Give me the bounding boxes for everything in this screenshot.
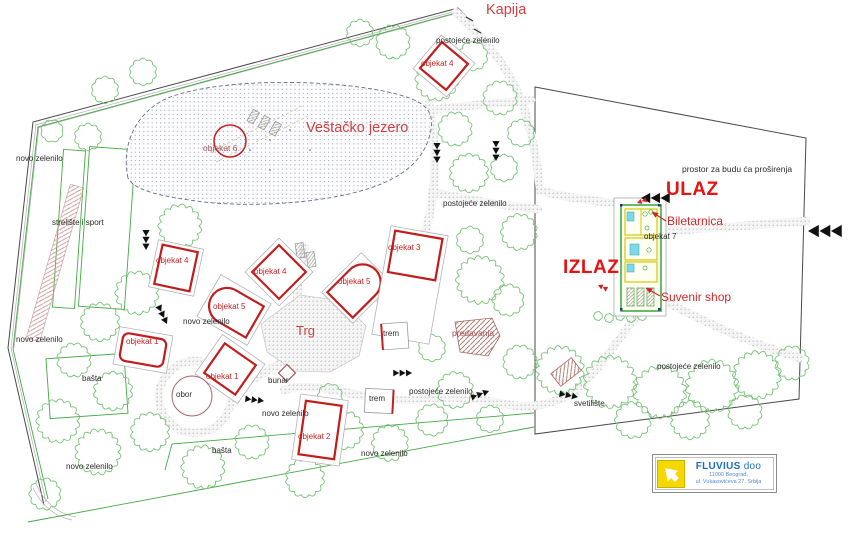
tree-icon xyxy=(450,153,489,193)
company-address-line2: ul. Vukasovićeva 27, Srbija xyxy=(685,479,772,486)
fluvius-logo-icon xyxy=(657,460,685,488)
svetiliste-structure xyxy=(551,358,581,387)
building-objekat-4-north xyxy=(413,35,475,97)
direction-arrows-icon xyxy=(142,230,149,250)
tree-icon xyxy=(492,284,524,316)
tree-icon xyxy=(503,345,537,379)
obor-pen xyxy=(172,376,212,416)
direction-arrows-icon xyxy=(245,395,264,404)
tree-icon xyxy=(457,226,484,254)
tree-icon xyxy=(728,395,762,429)
trem-north-structure xyxy=(381,322,409,350)
building-objekat-1-west xyxy=(113,327,173,374)
direction-arrows-icon xyxy=(492,141,499,161)
direction-arrows-icon xyxy=(597,283,608,292)
artificial-lake xyxy=(126,82,431,204)
direction-arrows-icon xyxy=(808,225,842,237)
tree-icon xyxy=(235,425,269,459)
tree-icon xyxy=(75,429,121,475)
site-plan-page: Kapijapostojeće zeleniloobjekat 4Veštačk… xyxy=(0,0,850,543)
building-objekat-4-west xyxy=(149,240,204,297)
tree-icon xyxy=(92,76,119,104)
tree-icon xyxy=(438,112,472,146)
tree-icon xyxy=(57,343,91,377)
tree-icon xyxy=(634,365,687,419)
tree-icon xyxy=(733,351,782,400)
tree-icon xyxy=(36,399,80,443)
direction-arrows-icon xyxy=(155,304,170,325)
tree-icon xyxy=(436,372,473,409)
green-areas xyxy=(46,147,136,419)
tree-icon xyxy=(347,19,374,47)
tree-icon xyxy=(130,58,157,86)
tree-icon xyxy=(671,400,710,440)
building-objekat-2 xyxy=(292,394,349,466)
direction-arrows-icon xyxy=(393,370,412,377)
tree-icon xyxy=(81,302,120,342)
tree-icon xyxy=(286,458,325,498)
company-address-line1: 11000 Beograd, xyxy=(685,472,772,479)
tree-icon xyxy=(416,404,448,436)
tree-icon xyxy=(477,405,504,433)
company-name: FLUVIUS doo xyxy=(685,461,772,472)
tree-icon xyxy=(181,445,225,489)
tree-icon xyxy=(500,214,537,251)
tree-icon xyxy=(371,425,408,462)
tree-icon xyxy=(605,314,614,323)
trem-south-structure xyxy=(364,388,393,413)
company-stamp: FLUVIUS doo 11000 Beograd, ul. Vukasović… xyxy=(652,454,777,493)
tree-icon xyxy=(75,123,102,151)
tree-icon xyxy=(584,355,637,409)
tree-icon xyxy=(456,256,505,305)
tree-icon xyxy=(594,312,603,321)
predavanja-structure xyxy=(455,318,500,356)
shooting-range-strip xyxy=(26,184,84,342)
